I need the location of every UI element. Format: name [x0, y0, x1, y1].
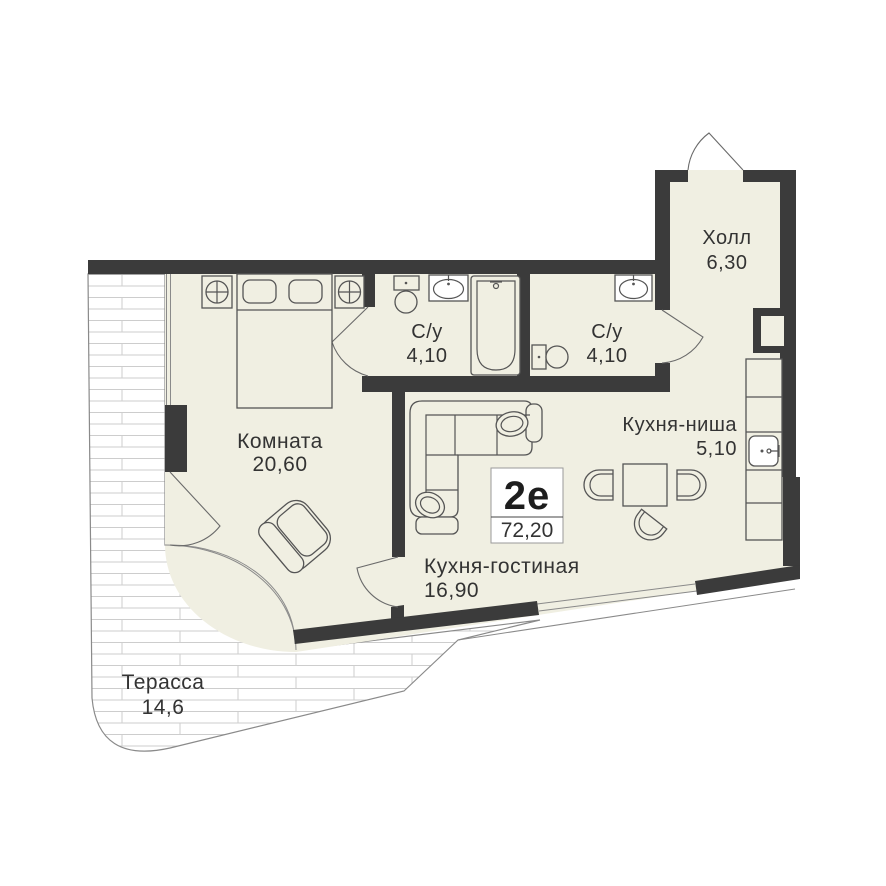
pillow-right: [289, 280, 322, 303]
wall-bath-bottom: [362, 376, 670, 392]
kitchen-niche-label: Кухня-ниша: [622, 414, 737, 436]
kitchen-living-label: Кухня-гостиная: [424, 555, 580, 578]
apartment-total-area: 72,20: [501, 519, 554, 542]
bath2-area: 4,10: [587, 345, 628, 367]
wall-hall-top-left: [655, 170, 688, 182]
pillow-left: [243, 280, 276, 303]
terrace-label: Терасса: [122, 671, 205, 694]
hall-area: 6,30: [707, 252, 748, 274]
duct-shaft-inner: [761, 316, 784, 346]
floor-plan-page: Холл 6,30 С/у 4,10 С/у 4,10 Комната 20,6…: [0, 0, 886, 886]
room-area: 20,60: [252, 453, 307, 476]
wall-bath2-right-upper: [655, 274, 670, 310]
wall-terrace-segment: [165, 405, 187, 472]
wall-top: [88, 260, 670, 274]
apartment-type: 2е: [504, 474, 551, 518]
bath2-label: С/у: [591, 321, 623, 343]
entrance-door-icon: [688, 133, 743, 170]
toilet1-bowl: [395, 291, 417, 313]
kitchen-niche-area: 5,10: [696, 438, 737, 460]
bath1-area: 4,10: [407, 345, 448, 367]
ottoman: [416, 517, 458, 534]
wall-hall-left: [655, 170, 670, 274]
floor-plan-svg: Холл 6,30 С/у 4,10 С/у 4,10 Комната 20,6…: [0, 0, 886, 886]
kitchen-living-area: 16,90: [424, 579, 479, 602]
wall-room-divider: [392, 392, 405, 557]
toilet2-bowl: [546, 346, 568, 368]
kitchen-counter: [746, 359, 782, 540]
bath1-label: С/у: [411, 321, 443, 343]
apartment-badge: 2е 72,20: [491, 468, 563, 543]
terrace-area: 14,6: [142, 696, 185, 719]
room-label: Комната: [237, 430, 323, 453]
wall-bath2-right-lower: [655, 363, 670, 392]
wall-right-lower: [783, 477, 800, 566]
hall-label: Холл: [702, 227, 751, 249]
dining-table: [623, 464, 667, 506]
